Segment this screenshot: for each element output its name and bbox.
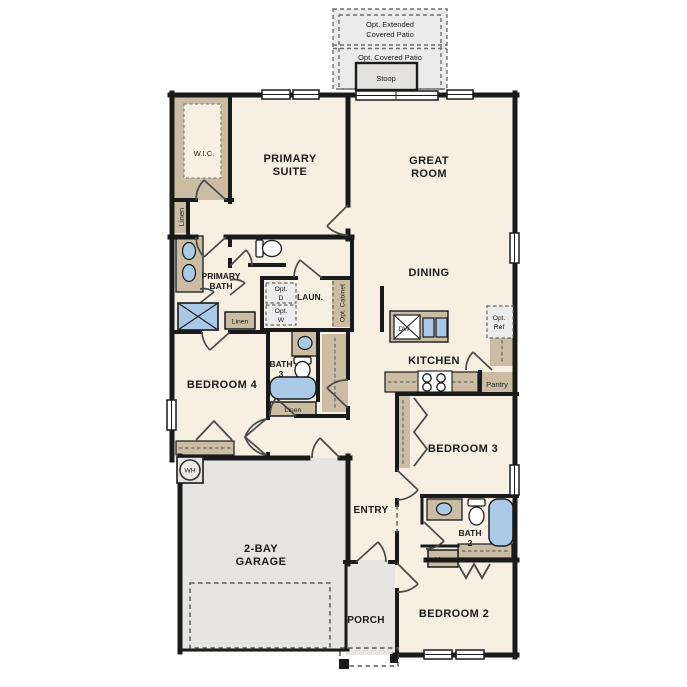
patio-ext-label2: Covered Patio xyxy=(366,30,414,39)
primary-suite-label2: SUITE xyxy=(273,166,307,178)
floor-plan-page: Opt. Extended Covered Patio Opt. Covered… xyxy=(0,0,687,687)
laundry-label: LAUN. xyxy=(297,292,323,302)
bathtub xyxy=(489,499,513,546)
sink xyxy=(437,503,452,515)
opt-ref-label: Opt. xyxy=(493,315,506,322)
garage-label2: GARAGE xyxy=(236,556,287,568)
entry-label: ENTRY xyxy=(353,505,388,516)
primary-suite-label: PRIMARY xyxy=(263,153,316,165)
kitchen-label: KITCHEN xyxy=(408,355,460,367)
porch-post xyxy=(390,654,398,663)
bedroom4-label: BEDROOM 4 xyxy=(187,379,258,391)
wic-label: W.I.C. xyxy=(194,149,214,158)
shower xyxy=(178,303,218,330)
toilet xyxy=(468,499,485,525)
opt-cabinet-label: Opt. Cabinet xyxy=(340,284,347,322)
bath2-label: BATH xyxy=(459,528,482,538)
opt-dryer-label: Opt. xyxy=(275,286,288,293)
great-room-label: GREAT xyxy=(409,155,449,167)
toilet xyxy=(256,240,282,257)
opt-washer-label2: W xyxy=(278,317,285,324)
wic-rod-dashed xyxy=(184,104,221,178)
linen-primary-label: Linen xyxy=(232,319,249,326)
opt-ref-box xyxy=(487,306,513,338)
sink xyxy=(298,337,312,350)
bathtub xyxy=(270,377,316,399)
linen-hall-label: Linen xyxy=(177,208,186,226)
opt-ref-label2: Ref xyxy=(494,324,505,331)
floor-plan: Opt. Extended Covered Patio Opt. Covered… xyxy=(0,0,687,687)
linen-bath3-label: Linen xyxy=(285,407,302,414)
bath3-label: BATH xyxy=(270,359,293,369)
opt-dryer-label2: D xyxy=(279,295,284,302)
bedroom2-label: BEDROOM 2 xyxy=(419,608,489,620)
porch-floor xyxy=(346,560,395,655)
primary-bath-label2: BATH xyxy=(210,281,233,291)
patio-ext-label: Opt. Extended xyxy=(366,20,414,29)
pantry-label: Pantry xyxy=(486,380,508,389)
bath3-label2: 3 xyxy=(279,369,284,379)
toilet xyxy=(294,357,311,379)
stoop-label: Stoop xyxy=(376,74,396,83)
sink xyxy=(183,243,196,260)
garage-floor xyxy=(180,458,348,652)
stove xyxy=(418,371,452,392)
dishwasher-label: DW xyxy=(398,326,410,333)
porch-label: PORCH xyxy=(347,615,385,626)
patio-cov-label: Opt. Covered Patio xyxy=(358,53,422,62)
garage-label: 2-BAY xyxy=(244,543,278,555)
opt-washer-label: Opt. xyxy=(275,308,288,315)
great-room-label2: ROOM xyxy=(411,168,447,180)
porch-post xyxy=(339,659,349,669)
bath2-label2: 2 xyxy=(468,538,473,548)
bedroom3-label: BEDROOM 3 xyxy=(428,443,498,455)
primary-bath-label: PRIMARY xyxy=(202,271,241,281)
dining-label: DINING xyxy=(409,267,450,279)
linen-bath2-label: Linen xyxy=(435,557,452,564)
sink xyxy=(183,265,196,282)
water-heater-label: WH xyxy=(184,468,195,475)
